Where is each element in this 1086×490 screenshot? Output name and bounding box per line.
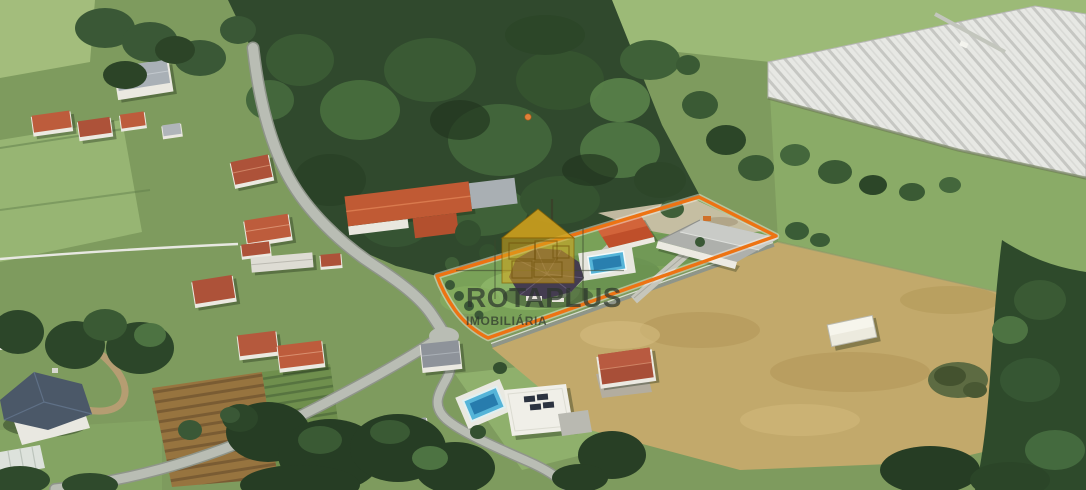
house bbox=[420, 340, 466, 376]
house bbox=[119, 111, 147, 131]
aerial-photo-canvas: ROTAPLUS IMOBILIÁRIA bbox=[0, 0, 1086, 490]
house bbox=[237, 330, 283, 363]
bush-cluster bbox=[928, 362, 988, 398]
orange-machine bbox=[703, 216, 711, 221]
house bbox=[319, 253, 342, 270]
aerial-photo: ROTAPLUS IMOBILIÁRIA bbox=[0, 0, 1086, 490]
forest-marker-dot bbox=[525, 114, 531, 120]
house bbox=[161, 123, 183, 140]
house bbox=[276, 340, 328, 376]
watermark-brand-text: ROTAPLUS bbox=[466, 282, 622, 313]
watermark-tagline-text: IMOBILIÁRIA bbox=[466, 313, 547, 328]
